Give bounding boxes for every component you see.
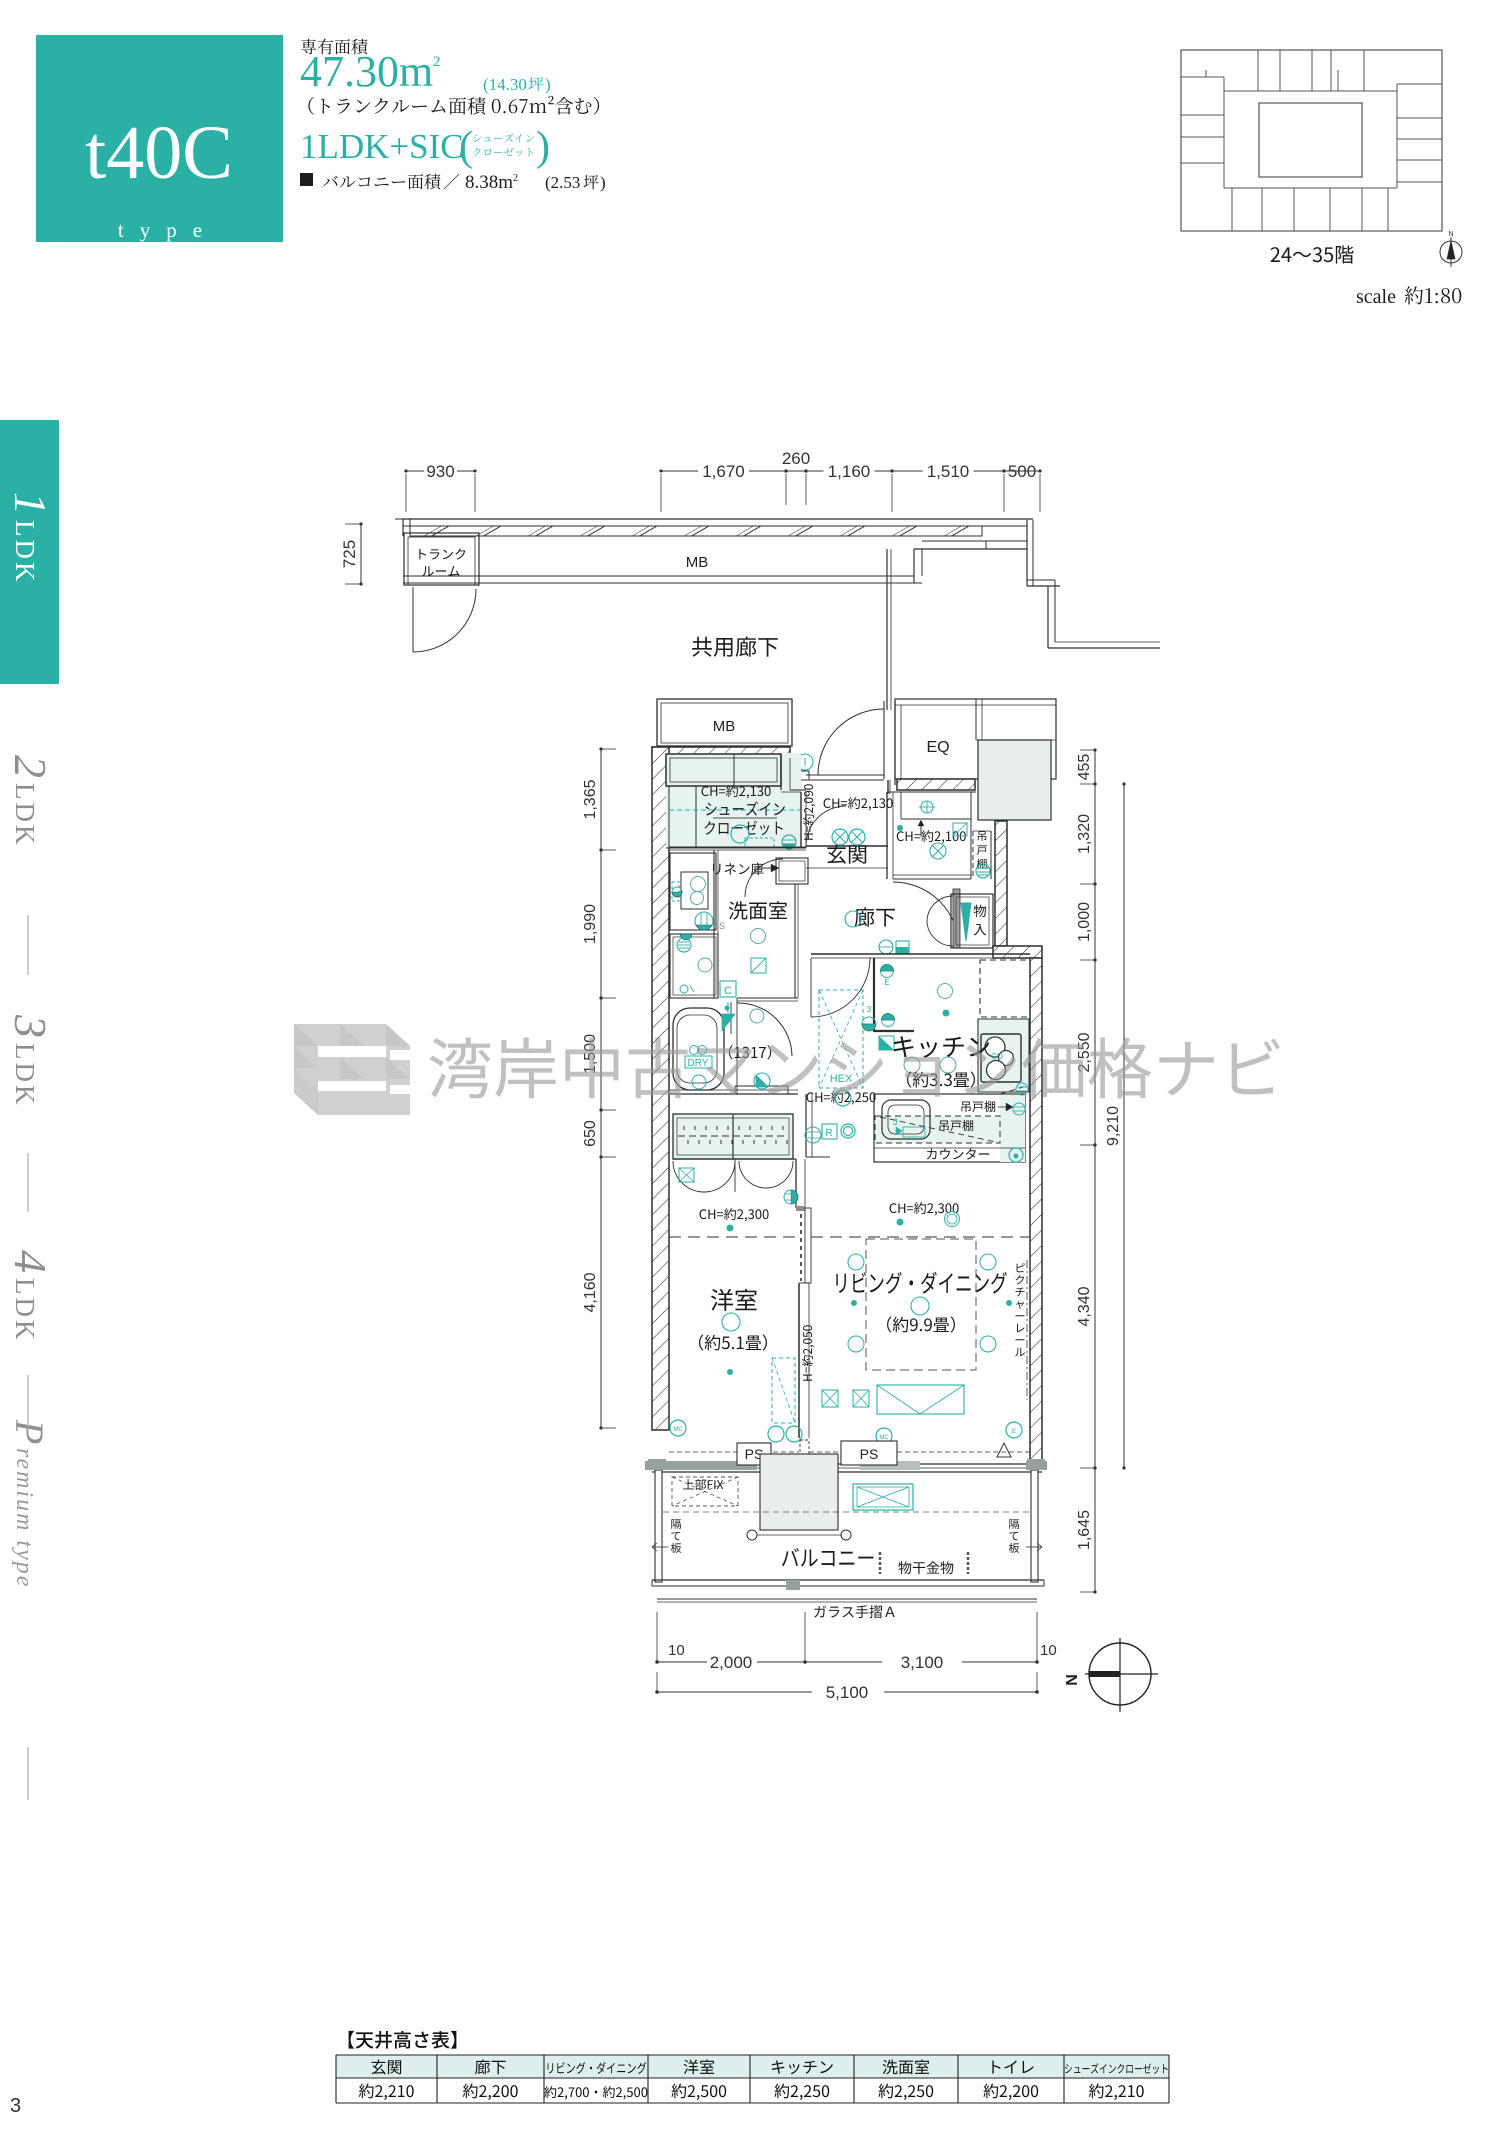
svg-text:PS: PS [860, 1446, 879, 1462]
svg-text:1,990: 1,990 [582, 904, 599, 944]
svg-text:4,160: 4,160 [582, 1272, 599, 1312]
svg-text:P: P [7, 1419, 52, 1444]
svg-text:3: 3 [867, 1005, 872, 1014]
svg-text:3: 3 [5, 1014, 56, 1038]
svg-text:4,340: 4,340 [1076, 1286, 1093, 1326]
svg-text:N: N [1448, 231, 1453, 238]
svg-text:1,670: 1,670 [702, 462, 745, 481]
svg-text:): ) [536, 124, 550, 170]
svg-text:4: 4 [5, 1250, 56, 1273]
svg-text:725: 725 [340, 540, 359, 568]
svg-text:J: J [893, 1117, 898, 1127]
svg-text:1,320: 1,320 [1076, 814, 1093, 854]
svg-text:MC: MC [879, 1435, 889, 1441]
svg-text:3: 3 [10, 2095, 21, 2117]
svg-text:(2.53: (2.53 [545, 173, 580, 192]
svg-text:LDK: LDK [10, 1278, 40, 1343]
svg-text:E: E [884, 978, 889, 987]
svg-text:930: 930 [426, 462, 454, 481]
svg-text:): ) [600, 173, 606, 192]
svg-text:t40C: t40C [85, 111, 233, 195]
svg-text:EQ: EQ [926, 739, 949, 756]
svg-text:LDK: LDK [10, 783, 40, 848]
svg-text:C: C [724, 985, 732, 997]
svg-text:2: 2 [433, 54, 441, 70]
svg-text:MB: MB [686, 554, 709, 571]
svg-text:1,645: 1,645 [1076, 1510, 1093, 1550]
svg-text:LDK: LDK [10, 1043, 40, 1108]
svg-text:remium type: remium type [11, 1448, 37, 1588]
svg-text:2S: 2S [714, 921, 725, 931]
svg-text:1LDK+SIC: 1LDK+SIC [300, 127, 464, 166]
svg-text:260: 260 [782, 449, 810, 468]
svg-text:8.38m: 8.38m [465, 172, 513, 193]
svg-text:(14.30: (14.30 [483, 75, 527, 94]
svg-text:1,365: 1,365 [582, 779, 599, 819]
svg-text:1,000: 1,000 [1076, 902, 1093, 942]
svg-text:2: 2 [5, 755, 56, 778]
svg-text:MB: MB [713, 718, 736, 735]
svg-text:R: R [825, 1128, 832, 1139]
svg-text:type: type [118, 218, 218, 242]
svg-text:2,000: 2,000 [710, 1653, 753, 1672]
svg-text:DRY: DRY [688, 1058, 709, 1069]
svg-text:650: 650 [582, 1120, 599, 1147]
svg-text:3,100: 3,100 [901, 1653, 944, 1672]
svg-text:455: 455 [1076, 754, 1093, 781]
svg-text:(: ( [459, 124, 473, 170]
svg-text:HEX: HEX [830, 1073, 853, 1085]
svg-text:1: 1 [5, 492, 56, 515]
svg-text:E: E [1012, 1429, 1016, 1435]
svg-text:500: 500 [1008, 462, 1036, 481]
svg-text:N: N [1064, 1674, 1081, 1686]
svg-text:1,510: 1,510 [927, 462, 970, 481]
svg-text:scale: scale [1356, 286, 1396, 308]
svg-text:10: 10 [1040, 1642, 1057, 1659]
svg-text:2: 2 [513, 173, 518, 184]
svg-text:MC: MC [673, 1427, 683, 1433]
svg-text:10: 10 [668, 1642, 685, 1659]
svg-text:): ) [545, 75, 551, 94]
svg-text:1,160: 1,160 [828, 462, 871, 481]
svg-text:9,210: 9,210 [1105, 1106, 1122, 1146]
svg-text:LDK: LDK [10, 520, 40, 585]
svg-text:CO: CO [991, 1052, 1003, 1061]
svg-text:47.30m: 47.30m [300, 47, 433, 96]
svg-text:5,100: 5,100 [826, 1683, 869, 1702]
